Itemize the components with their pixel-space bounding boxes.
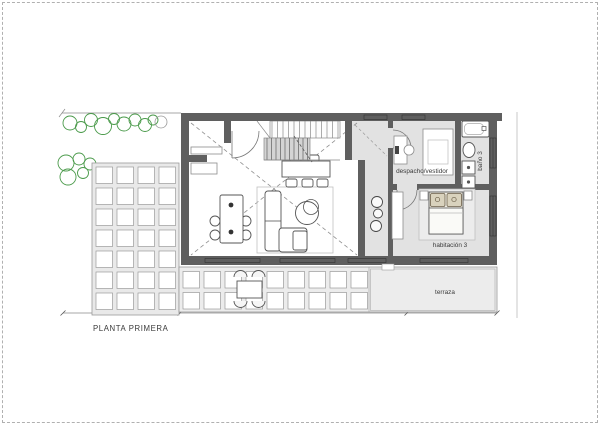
- trees-cluster-left: [58, 153, 96, 185]
- nightstand-left: [420, 191, 428, 200]
- pillow-left: [431, 194, 446, 207]
- room-label-study: despacho/vestidor: [396, 168, 449, 175]
- pillow-right: [447, 194, 462, 207]
- drawing-sheet: terraza: [0, 0, 600, 425]
- hallway-floor-upper: [352, 121, 388, 160]
- kitchen-counter: [191, 147, 222, 154]
- floor-plan: terraza: [0, 0, 600, 425]
- bedroom-closet: [392, 192, 403, 239]
- room-label-terrace: terraza: [435, 289, 455, 296]
- bathtub-faucet: [482, 127, 486, 131]
- hallway-floor: [365, 160, 388, 256]
- bath-sink: [463, 143, 475, 158]
- desk-chair: [404, 145, 414, 155]
- study-room: despacho/vestidor: [394, 129, 453, 175]
- terrace-area: terraza: [179, 267, 497, 312]
- duvet: [429, 208, 463, 234]
- plan-caption: PLANTA PRIMERA: [93, 324, 169, 333]
- desk-monitor: [395, 146, 399, 154]
- trees-row-top: [63, 114, 167, 135]
- nightstand-right: [464, 191, 472, 200]
- paved-patio: [92, 163, 179, 315]
- kitchen-counter-2: [191, 163, 217, 174]
- room-label-bedroom: habitación 3: [433, 242, 468, 249]
- room-label-bath: baño 3: [477, 151, 484, 171]
